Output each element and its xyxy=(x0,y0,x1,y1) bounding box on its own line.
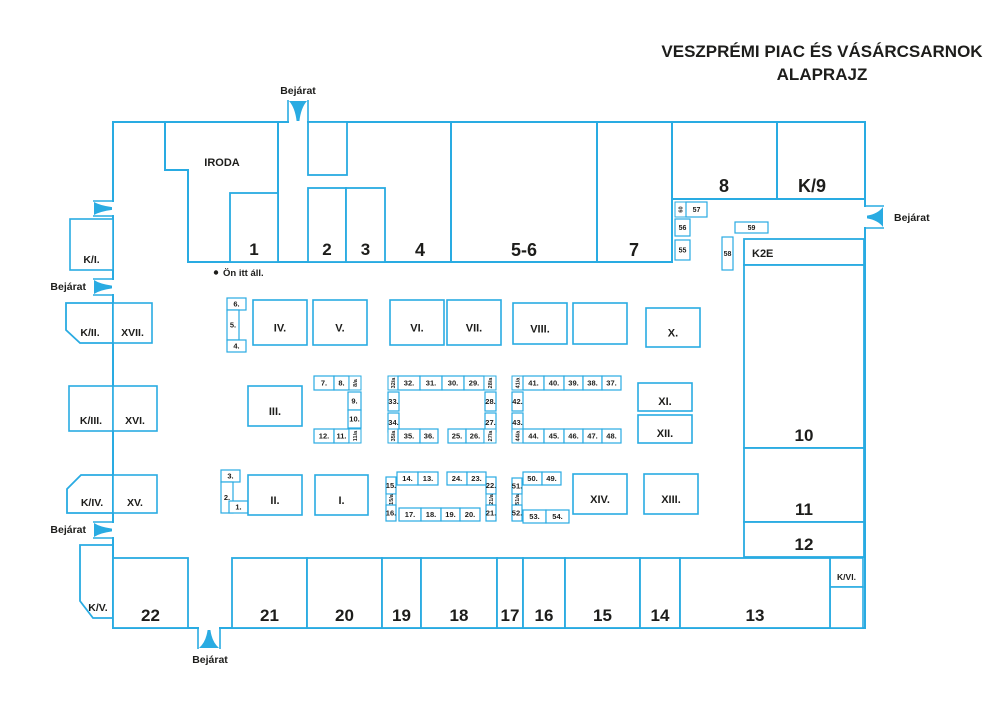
room-label: 40. xyxy=(549,379,559,388)
room-IV: IV. xyxy=(253,300,307,345)
room-I: I. xyxy=(315,475,368,515)
room-label: 33. xyxy=(388,397,398,406)
room-outline xyxy=(830,587,863,628)
room-outline xyxy=(308,122,347,175)
entrance-arrow-left xyxy=(866,206,884,228)
room-label: 46. xyxy=(568,432,578,441)
room-label: K/V. xyxy=(88,602,108,614)
room-3: 3 xyxy=(346,188,385,262)
entrance-arrow-right xyxy=(93,201,113,216)
room-32: 32. xyxy=(398,376,420,390)
room-27a: 27/a xyxy=(484,429,496,443)
room-X: X. xyxy=(646,308,700,347)
room-label: VI. xyxy=(410,323,423,335)
room-11: 11. xyxy=(334,429,349,443)
room-label: 18 xyxy=(450,606,469,625)
room-40: 40. xyxy=(544,376,564,390)
room-44: 44. xyxy=(523,429,544,443)
room-label: 45. xyxy=(549,432,559,441)
room-XV: XV. xyxy=(113,475,157,513)
room-19: 19 xyxy=(382,558,421,628)
room-XIV: XIV. xyxy=(573,474,627,514)
room-22: 22. xyxy=(486,477,496,494)
room-III: III. xyxy=(248,386,302,426)
room-60: 60 xyxy=(675,202,686,217)
room-II: II. xyxy=(248,475,302,515)
room-label: 5. xyxy=(230,321,236,330)
room-41: 41. xyxy=(523,376,544,390)
entrance-funnel-icon xyxy=(94,280,112,294)
room-label: III. xyxy=(269,406,281,418)
room-24: 24. xyxy=(447,472,467,485)
entrance-arrow-right xyxy=(93,279,113,295)
room-VIII: VIII. xyxy=(513,303,567,344)
room-55: 55 xyxy=(675,240,690,260)
room-4: 4. xyxy=(227,340,246,352)
entrance-funnel-icon xyxy=(289,101,307,121)
room-47: 47. xyxy=(583,429,602,443)
room-label: K/II. xyxy=(80,327,99,339)
room-label: VIII. xyxy=(530,324,550,336)
room-label: 16 xyxy=(535,606,554,625)
room-42: 42. xyxy=(512,392,523,411)
office-label: IRODA xyxy=(204,157,240,169)
room-label-5-6: 5-6 xyxy=(511,240,537,260)
room-label: 19 xyxy=(392,606,411,625)
room-label: 28. xyxy=(485,397,495,406)
room-18: 18 xyxy=(421,558,497,628)
room-label: 19. xyxy=(445,510,455,519)
room-label: 12 xyxy=(795,535,814,554)
room-41a: 41/a xyxy=(512,376,523,390)
room-outline xyxy=(573,303,627,344)
room-label: XIV. xyxy=(590,494,610,506)
room-KVI: K/VI. xyxy=(830,558,863,587)
room-49: 49. xyxy=(542,472,561,485)
room-label: XIII. xyxy=(661,494,681,506)
room-label: 57 xyxy=(693,207,701,214)
room-label: 39. xyxy=(568,379,578,388)
room-30: 30. xyxy=(442,376,464,390)
room-20: 20. xyxy=(460,508,480,521)
room-VII: VII. xyxy=(447,300,501,345)
room-label: 35/a xyxy=(391,430,397,442)
entrance-label-bottom: Bejárat xyxy=(192,654,228,666)
room-KIII: K/III. xyxy=(69,386,113,431)
room-label: 12. xyxy=(319,432,329,441)
room-label: K/I. xyxy=(83,254,99,266)
room-13: 13 xyxy=(680,558,830,628)
room-14: 14. xyxy=(397,472,418,485)
room-label: 51. xyxy=(512,482,522,491)
room-50: 50. xyxy=(523,472,542,485)
room-32a: 32/a xyxy=(388,376,398,390)
room-KV: K/V. xyxy=(80,545,113,618)
room-label: 25. xyxy=(452,432,462,441)
room-outline xyxy=(744,265,864,448)
room-label: 13. xyxy=(423,474,433,483)
room-label: 32. xyxy=(404,379,414,388)
room-10: 10 xyxy=(744,265,864,448)
room-44a: 44/a xyxy=(512,429,523,443)
room-label: 7. xyxy=(321,379,327,388)
room-label: 49. xyxy=(546,474,556,483)
room-51a: 51/a xyxy=(512,493,522,505)
room-label: 47. xyxy=(587,432,597,441)
room-38: 38. xyxy=(583,376,602,390)
room-label: I. xyxy=(338,495,344,507)
room-label: XV. xyxy=(127,497,143,509)
room-label: 37. xyxy=(606,379,616,388)
room-15: 15. xyxy=(386,477,396,494)
room-17: 17 xyxy=(497,558,523,628)
room-label: 29. xyxy=(469,379,479,388)
room-8: 8. xyxy=(334,376,349,390)
room-11a: 11/a xyxy=(349,429,361,443)
room-label: 59 xyxy=(748,225,756,232)
room-label: 30. xyxy=(448,379,458,388)
room-label-8: 8 xyxy=(719,176,729,196)
room-20: 20 xyxy=(307,558,382,628)
room-7: 7. xyxy=(314,376,334,390)
room-19: 19. xyxy=(441,508,460,521)
room-14: 14 xyxy=(640,558,680,628)
room-label: 48. xyxy=(606,432,616,441)
room-13: 13. xyxy=(418,472,438,485)
room-17: 17. xyxy=(399,508,421,521)
room-21: 21. xyxy=(486,505,496,521)
room-label: XVII. xyxy=(121,327,144,339)
room-1: 1 xyxy=(230,193,278,262)
room-label: 18. xyxy=(426,510,436,519)
entrance-arrow-right xyxy=(93,522,113,538)
wall-segment xyxy=(165,122,188,262)
room-unlabeled xyxy=(573,303,627,344)
room-label: 21. xyxy=(486,509,496,518)
room-28: 28. xyxy=(485,392,496,411)
room-51: 51. xyxy=(512,478,522,494)
floorplan-page: K/II.K/IV.K/V.K/I.XVII.K/III.XVI.XV.K/VI… xyxy=(0,0,1000,707)
room-label: 55 xyxy=(679,248,687,255)
room-label: K/VI. xyxy=(837,572,856,582)
room-label: 22 xyxy=(141,606,160,625)
room-label: 6. xyxy=(233,300,239,309)
room-3: 3. xyxy=(221,470,240,482)
room-35: 35. xyxy=(398,429,420,443)
room-52: 52. xyxy=(512,505,522,521)
room-KII: K/II. xyxy=(66,303,113,343)
room-label: 4. xyxy=(233,342,239,351)
room-label: 44/a xyxy=(515,430,521,442)
room-label: 3 xyxy=(361,240,370,259)
room-9: 9. xyxy=(348,392,361,410)
room-35a: 35/a xyxy=(388,429,398,443)
room-label: K/IV. xyxy=(81,497,103,509)
room-label: XI. xyxy=(658,396,671,408)
room-label: 43. xyxy=(512,418,522,427)
room-22: 22 xyxy=(113,558,188,628)
room-label: 52. xyxy=(512,509,522,518)
room-25: 25. xyxy=(448,429,466,443)
room-label-4: 4 xyxy=(415,240,425,260)
room-label: 20 xyxy=(335,606,354,625)
room-15: 15 xyxy=(565,558,640,628)
entrance-label-right: Bejárat xyxy=(894,212,930,224)
room-33: 33. xyxy=(388,392,399,411)
entrance-arrow-down xyxy=(288,100,308,122)
room-label: 9. xyxy=(351,397,357,406)
room-VI: VI. xyxy=(390,300,444,345)
room-label-7: 7 xyxy=(629,240,639,260)
room-48: 48. xyxy=(602,429,621,443)
room-12: 12. xyxy=(314,429,334,443)
room-label-K9: K/9 xyxy=(798,176,826,196)
room-label: 34. xyxy=(388,418,398,427)
room-label: 60 xyxy=(678,206,684,212)
room-label: 10. xyxy=(349,415,359,424)
entrance-funnel-icon xyxy=(94,523,112,537)
room-8a: 8/a xyxy=(349,376,361,390)
room-label: 15. xyxy=(386,481,396,490)
room-label: 2 xyxy=(322,240,331,259)
room-label: 15 xyxy=(593,606,612,625)
room-label: 54. xyxy=(552,512,562,521)
room-unlabeled xyxy=(308,122,347,175)
room-46: 46. xyxy=(564,429,583,443)
room-label: 1. xyxy=(235,503,241,512)
room-label: 11/a xyxy=(353,430,359,441)
room-label: 58 xyxy=(724,251,732,258)
room-18: 18. xyxy=(421,508,441,521)
room-label: K2E xyxy=(752,248,773,260)
room-label: 56 xyxy=(679,225,687,232)
room-label: 11. xyxy=(336,432,346,441)
entrance-arrow-up xyxy=(198,629,220,649)
room-XII: XII. xyxy=(638,415,692,443)
room-label: 51/a xyxy=(515,493,521,505)
room-2: 2 xyxy=(308,188,346,262)
room-unlabeled xyxy=(830,587,863,628)
room-56: 56 xyxy=(675,219,690,236)
room-11: 11 xyxy=(744,448,864,522)
room-label: 3. xyxy=(227,472,233,481)
room-label: K/III. xyxy=(80,415,102,427)
room-label: 13 xyxy=(746,606,765,625)
room-label: VII. xyxy=(466,323,483,335)
floorplan-svg: K/II.K/IV.K/V.K/I.XVII.K/III.XVI.XV.K/VI… xyxy=(0,0,1000,707)
entrance-funnel-icon xyxy=(94,202,112,215)
room-label: 41. xyxy=(528,379,538,388)
room-K2E: K2E xyxy=(744,239,864,265)
room-53: 53. xyxy=(523,510,546,523)
room-label: 44. xyxy=(528,432,538,441)
room-36: 36. xyxy=(420,429,438,443)
room-label: 11 xyxy=(795,500,813,519)
room-1: 1. xyxy=(229,501,248,513)
room-57: 57 xyxy=(686,202,707,217)
room-29: 29. xyxy=(464,376,484,390)
entrance-funnel-icon xyxy=(199,630,219,648)
title-line2: ALAPRAJZ xyxy=(777,65,868,84)
room-23: 23. xyxy=(467,472,486,485)
room-label: 23. xyxy=(471,474,481,483)
room-label: 8/a xyxy=(353,378,359,387)
room-label: 21 xyxy=(260,606,279,625)
room-28a: 28/a xyxy=(484,376,496,390)
room-label: 14. xyxy=(402,474,412,483)
room-label: 24. xyxy=(452,474,462,483)
entrance-label-left-lower: Bejárat xyxy=(50,524,86,536)
entrance-label-left-upper: Bejárat xyxy=(50,281,86,293)
room-58: 58 xyxy=(722,237,733,270)
room-6: 6. xyxy=(227,298,246,310)
room-16: 16 xyxy=(523,558,565,628)
room-label: 21/a xyxy=(489,493,495,505)
room-label: 42. xyxy=(512,397,522,406)
room-KIV: K/IV. xyxy=(67,475,113,513)
room-label: V. xyxy=(335,323,344,335)
room-label: 22. xyxy=(486,481,496,490)
room-26: 26. xyxy=(466,429,484,443)
room-label: 15/a xyxy=(389,493,395,505)
room-45: 45. xyxy=(544,429,564,443)
room-label: 35. xyxy=(404,432,414,441)
entrance-funnel-icon xyxy=(867,207,883,227)
room-label: 31. xyxy=(426,379,436,388)
room-15a: 15/a xyxy=(386,493,396,505)
room-label: 17. xyxy=(405,510,415,519)
room-label: 17 xyxy=(501,606,520,625)
room-label: 14 xyxy=(651,606,670,625)
room-label: 32/a xyxy=(391,377,397,389)
room-label: X. xyxy=(668,328,678,340)
room-label: 38. xyxy=(587,379,597,388)
room-XVII: XVII. xyxy=(113,303,152,343)
room-21: 21 xyxy=(232,558,307,628)
title-line1: VESZPRÉMI PIAC ÉS VÁSÁRCSARNOK xyxy=(661,42,983,61)
room-label: II. xyxy=(270,495,279,507)
you-are-here-dot xyxy=(214,270,218,274)
room-54: 54. xyxy=(546,510,569,523)
room-label: 8. xyxy=(338,379,344,388)
room-label: 28/a xyxy=(488,377,494,389)
room-label: 20. xyxy=(465,510,475,519)
room-5: 5. xyxy=(227,310,239,340)
room-label: 26. xyxy=(470,432,480,441)
room-label: XII. xyxy=(657,428,674,440)
entrance-label-top: Bejárat xyxy=(280,85,316,97)
room-KI: K/I. xyxy=(70,219,113,270)
room-label: XVI. xyxy=(125,415,145,427)
room-label: 50. xyxy=(527,474,537,483)
room-label: 10 xyxy=(795,426,814,445)
room-XI: XI. xyxy=(638,383,692,411)
room-XVI: XVI. xyxy=(113,386,157,431)
room-label: 1 xyxy=(249,240,258,259)
room-label: 27. xyxy=(485,418,495,427)
room-label: 36. xyxy=(424,432,434,441)
you-are-here-label: Ön itt áll. xyxy=(223,268,264,279)
room-12: 12 xyxy=(744,522,864,557)
room-37: 37. xyxy=(602,376,621,390)
room-59: 59 xyxy=(735,222,768,233)
room-39: 39. xyxy=(564,376,583,390)
room-10: 10. xyxy=(348,410,361,428)
room-label: 53. xyxy=(529,512,539,521)
room-label: 27/a xyxy=(488,430,494,442)
room-label: 16. xyxy=(386,509,396,518)
room-16: 16. xyxy=(386,505,396,521)
room-31: 31. xyxy=(420,376,442,390)
room-XIII: XIII. xyxy=(644,474,698,514)
room-label: 41/a xyxy=(515,377,521,389)
room-V: V. xyxy=(313,300,367,345)
room-label: IV. xyxy=(274,323,286,335)
room-21a: 21/a xyxy=(486,493,496,505)
